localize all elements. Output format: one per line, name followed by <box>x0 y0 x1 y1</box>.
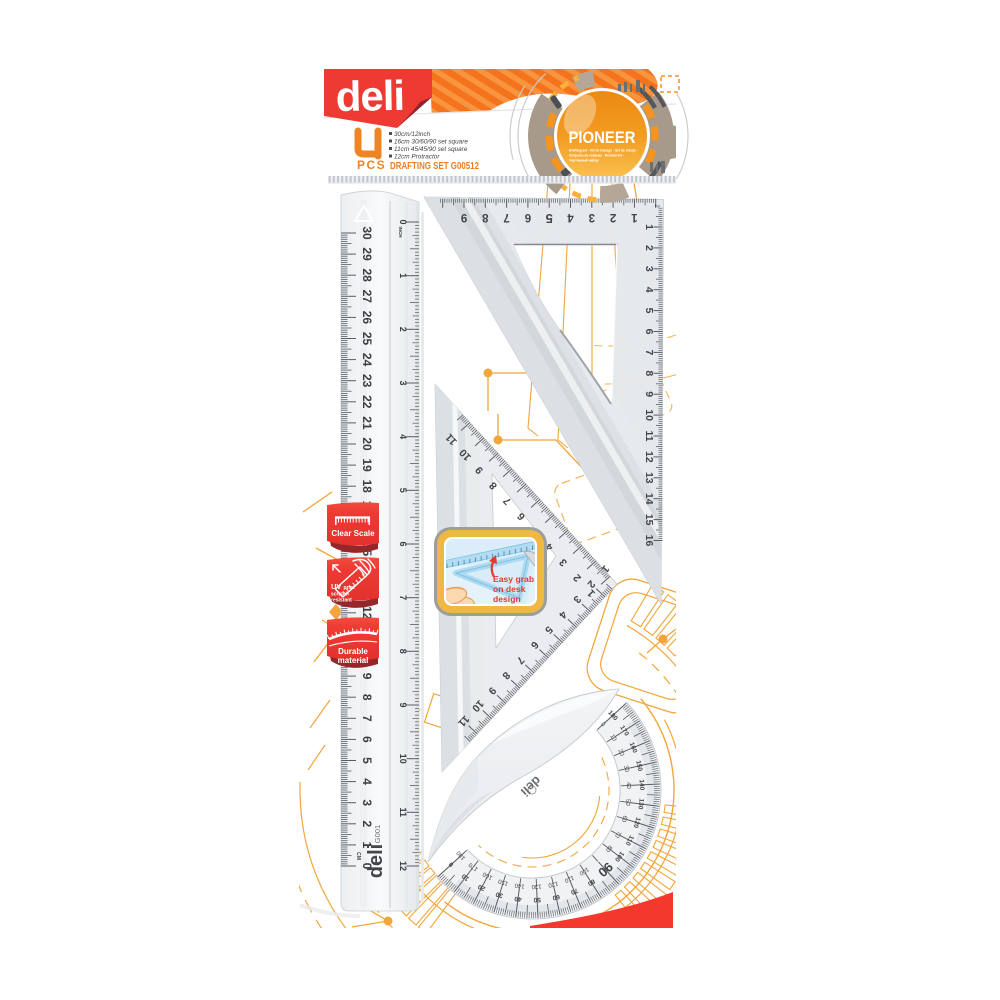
svg-text:2: 2 <box>398 327 408 332</box>
svg-text:4: 4 <box>643 287 655 293</box>
svg-text:27: 27 <box>360 290 374 304</box>
svg-text:7: 7 <box>360 715 374 722</box>
svg-text:50: 50 <box>533 896 541 903</box>
svg-text:material: material <box>338 656 369 665</box>
svg-text:CM: CM <box>355 852 361 860</box>
svg-text:22: 22 <box>360 395 374 409</box>
svg-text:DRAFTING SET G00512: DRAFTING SET G00512 <box>390 160 479 172</box>
svg-text:design: design <box>493 594 521 604</box>
svg-text:11cm 45/45/90 set square: 11cm 45/45/90 set square <box>394 146 468 153</box>
svg-text:3: 3 <box>398 380 408 385</box>
svg-text:7: 7 <box>643 349 655 355</box>
svg-text:30: 30 <box>360 226 374 240</box>
svg-text:18: 18 <box>360 480 374 494</box>
svg-text:4: 4 <box>398 434 408 439</box>
svg-text:16: 16 <box>643 535 655 547</box>
svg-text:PIONEER: PIONEER <box>569 128 636 147</box>
svg-text:6: 6 <box>525 211 531 223</box>
svg-text:INCH: INCH <box>398 227 403 238</box>
svg-text:Clear Scale: Clear Scale <box>331 529 375 538</box>
svg-text:8: 8 <box>398 649 408 654</box>
svg-text:15: 15 <box>643 514 655 526</box>
svg-text:5: 5 <box>360 757 374 764</box>
svg-text:8: 8 <box>360 694 374 701</box>
svg-text:7: 7 <box>398 595 408 600</box>
svg-text:1: 1 <box>398 273 408 278</box>
svg-text:9: 9 <box>461 211 467 223</box>
svg-text:12: 12 <box>643 451 655 463</box>
svg-text:6: 6 <box>643 329 655 335</box>
svg-text:12: 12 <box>398 861 408 871</box>
svg-text:11: 11 <box>643 430 655 441</box>
svg-text:26: 26 <box>360 311 374 325</box>
svg-text:11: 11 <box>398 808 408 818</box>
svg-text:3: 3 <box>360 799 374 806</box>
svg-text:140: 140 <box>638 779 646 791</box>
svg-text:20: 20 <box>360 437 374 451</box>
svg-text:6: 6 <box>360 736 374 743</box>
svg-text:G001: G001 <box>373 825 382 843</box>
svg-text:5: 5 <box>398 488 408 493</box>
svg-text:29: 29 <box>360 247 374 261</box>
svg-text:30cm/12inch: 30cm/12inch <box>394 131 431 138</box>
svg-text:8: 8 <box>482 211 489 223</box>
svg-text:21: 21 <box>360 416 374 430</box>
svg-text:3: 3 <box>643 266 655 272</box>
svg-text:13: 13 <box>643 472 655 484</box>
svg-text:16cm 30/60/90 set square: 16cm 30/60/90 set square <box>394 139 468 146</box>
svg-text:2: 2 <box>360 820 374 827</box>
svg-text:10: 10 <box>398 754 408 764</box>
svg-text:deli: deli <box>335 72 404 120</box>
svg-text:14: 14 <box>643 493 655 505</box>
svg-text:23: 23 <box>360 374 374 388</box>
svg-text:9: 9 <box>360 673 374 680</box>
svg-text:10: 10 <box>643 409 655 421</box>
svg-text:130: 130 <box>636 798 644 810</box>
svg-text:Conjunto de redacao · Reissler: Conjunto de redacao · Reisslerset · <box>569 154 624 158</box>
svg-text:deli: deli <box>365 844 387 878</box>
svg-text:4: 4 <box>360 778 374 785</box>
svg-text:28: 28 <box>360 269 374 283</box>
svg-text:40: 40 <box>625 782 631 790</box>
svg-text:19: 19 <box>360 458 374 472</box>
svg-text:9: 9 <box>643 391 655 397</box>
svg-text:130: 130 <box>531 883 542 889</box>
svg-text:24: 24 <box>360 353 374 367</box>
svg-text:on desk: on desk <box>493 584 526 594</box>
svg-text:40: 40 <box>514 895 522 903</box>
svg-text:5: 5 <box>546 211 553 226</box>
svg-text:Drafting set · Kit de tracage: Drafting set · Kit de tracage · Set de d… <box>569 149 638 153</box>
svg-text:8: 8 <box>643 370 655 376</box>
svg-text:1: 1 <box>631 211 638 223</box>
svg-text:0: 0 <box>398 219 408 224</box>
svg-text:25: 25 <box>360 332 374 346</box>
svg-text:Easy grab: Easy grab <box>493 574 534 584</box>
svg-text:7: 7 <box>503 211 509 223</box>
svg-text:5: 5 <box>643 308 655 314</box>
svg-text:6: 6 <box>398 541 408 546</box>
svg-text:resistant: resistant <box>331 598 352 604</box>
svg-text:3: 3 <box>589 211 595 223</box>
svg-text:2: 2 <box>643 245 655 251</box>
svg-text:Чертежный набор: Чертежный набор <box>569 159 599 163</box>
svg-text:9: 9 <box>398 702 408 707</box>
svg-text:Durable: Durable <box>338 647 368 656</box>
svg-text:2: 2 <box>610 211 616 223</box>
svg-text:4: 4 <box>567 211 574 223</box>
svg-text:1: 1 <box>643 224 655 230</box>
svg-text:PCS: PCS <box>357 158 386 172</box>
